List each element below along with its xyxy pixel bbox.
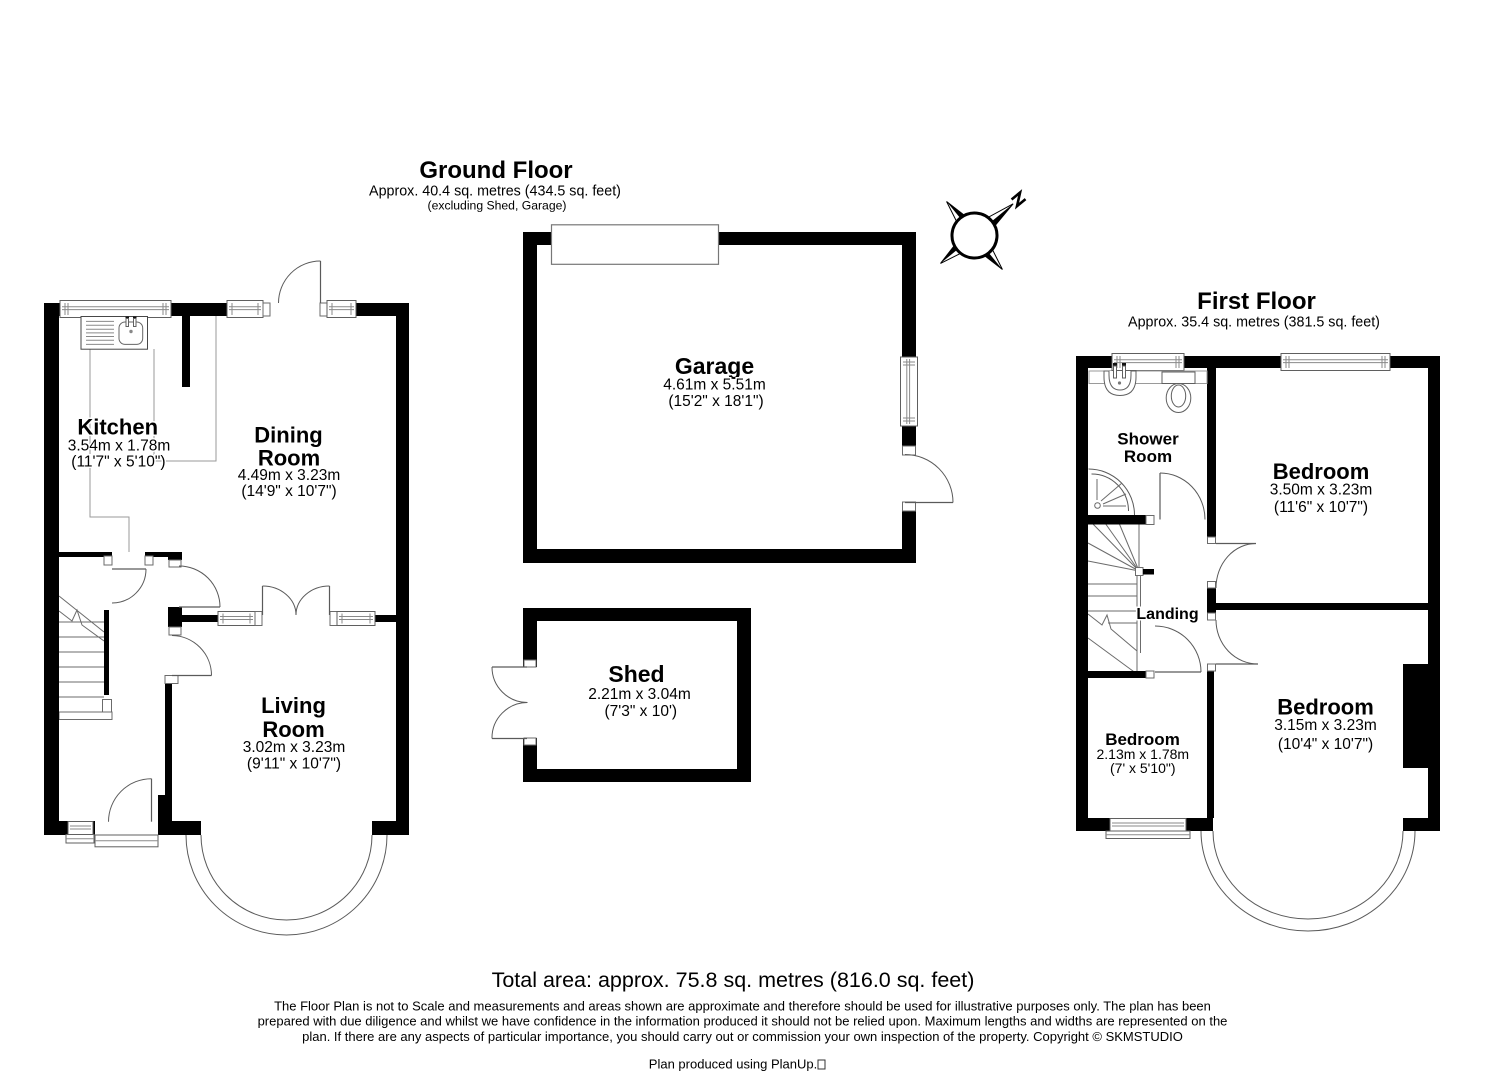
svg-text:Kitchen: Kitchen [77, 415, 158, 440]
svg-text:Plan produced using PlanUp.: Plan produced using PlanUp. [649, 1057, 817, 1072]
svg-text:(7'3" x 10'): (7'3" x 10') [605, 703, 678, 720]
svg-text:4.49m x 3.23m: 4.49m x 3.23m [238, 467, 341, 484]
svg-text:Shed: Shed [608, 661, 664, 687]
svg-text:(10'4" x 10'7"): (10'4" x 10'7") [1278, 736, 1373, 753]
svg-text:Landing: Landing [1136, 606, 1198, 623]
svg-text:Total area: approx. 75.8 sq. m: Total area: approx. 75.8 sq. metres (816… [492, 968, 975, 992]
svg-text:(11'7" x 5'10"): (11'7" x 5'10") [71, 453, 165, 470]
svg-text:Ground Floor: Ground Floor [419, 157, 572, 184]
svg-text:(14'9" x 10'7"): (14'9" x 10'7") [241, 483, 336, 500]
svg-text:First Floor: First Floor [1197, 288, 1316, 315]
svg-text:Garage: Garage [675, 353, 754, 379]
svg-text:Living: Living [261, 693, 326, 718]
svg-text:Bedroom: Bedroom [1277, 695, 1374, 720]
svg-text:prepared with due diligence an: prepared with due diligence and whilst w… [258, 1014, 1228, 1029]
svg-text:Dining: Dining [254, 423, 322, 448]
svg-text:(15'2" x 18'1"): (15'2" x 18'1") [668, 393, 763, 410]
svg-text:3.15m x 3.23m: 3.15m x 3.23m [1274, 717, 1377, 734]
svg-text:Approx. 40.4 sq. metres (434.5: Approx. 40.4 sq. metres (434.5 sq. feet) [369, 184, 621, 200]
svg-text:Approx. 35.4 sq. metres (381.5: Approx. 35.4 sq. metres (381.5 sq. feet) [1128, 315, 1380, 331]
svg-text:(excluding Shed, Garage): (excluding Shed, Garage) [428, 199, 567, 213]
svg-text:4.61m x 5.51m: 4.61m x 5.51m [663, 377, 766, 394]
svg-text:3.02m x 3.23m: 3.02m x 3.23m [243, 739, 346, 756]
svg-text:3.54m x 1.78m: 3.54m x 1.78m [68, 437, 171, 454]
svg-text:2.21m x 3.04m: 2.21m x 3.04m [588, 686, 691, 703]
svg-text:Room: Room [1124, 447, 1172, 466]
svg-text:3.50m x 3.23m: 3.50m x 3.23m [1270, 482, 1373, 499]
svg-text:plan. If there are any aspects: plan. If there are any aspects of partic… [302, 1029, 1183, 1044]
svg-text:(7' x 5'10"): (7' x 5'10") [1110, 760, 1176, 776]
svg-text:Bedroom: Bedroom [1273, 459, 1370, 484]
svg-text:Shower: Shower [1117, 429, 1179, 448]
svg-text:(9'11" x 10'7"): (9'11" x 10'7") [247, 755, 341, 772]
svg-text:The Floor Plan is not to Scale: The Floor Plan is not to Scale and measu… [274, 999, 1211, 1014]
svg-text:(11'6" x 10'7"): (11'6" x 10'7") [1274, 499, 1368, 516]
